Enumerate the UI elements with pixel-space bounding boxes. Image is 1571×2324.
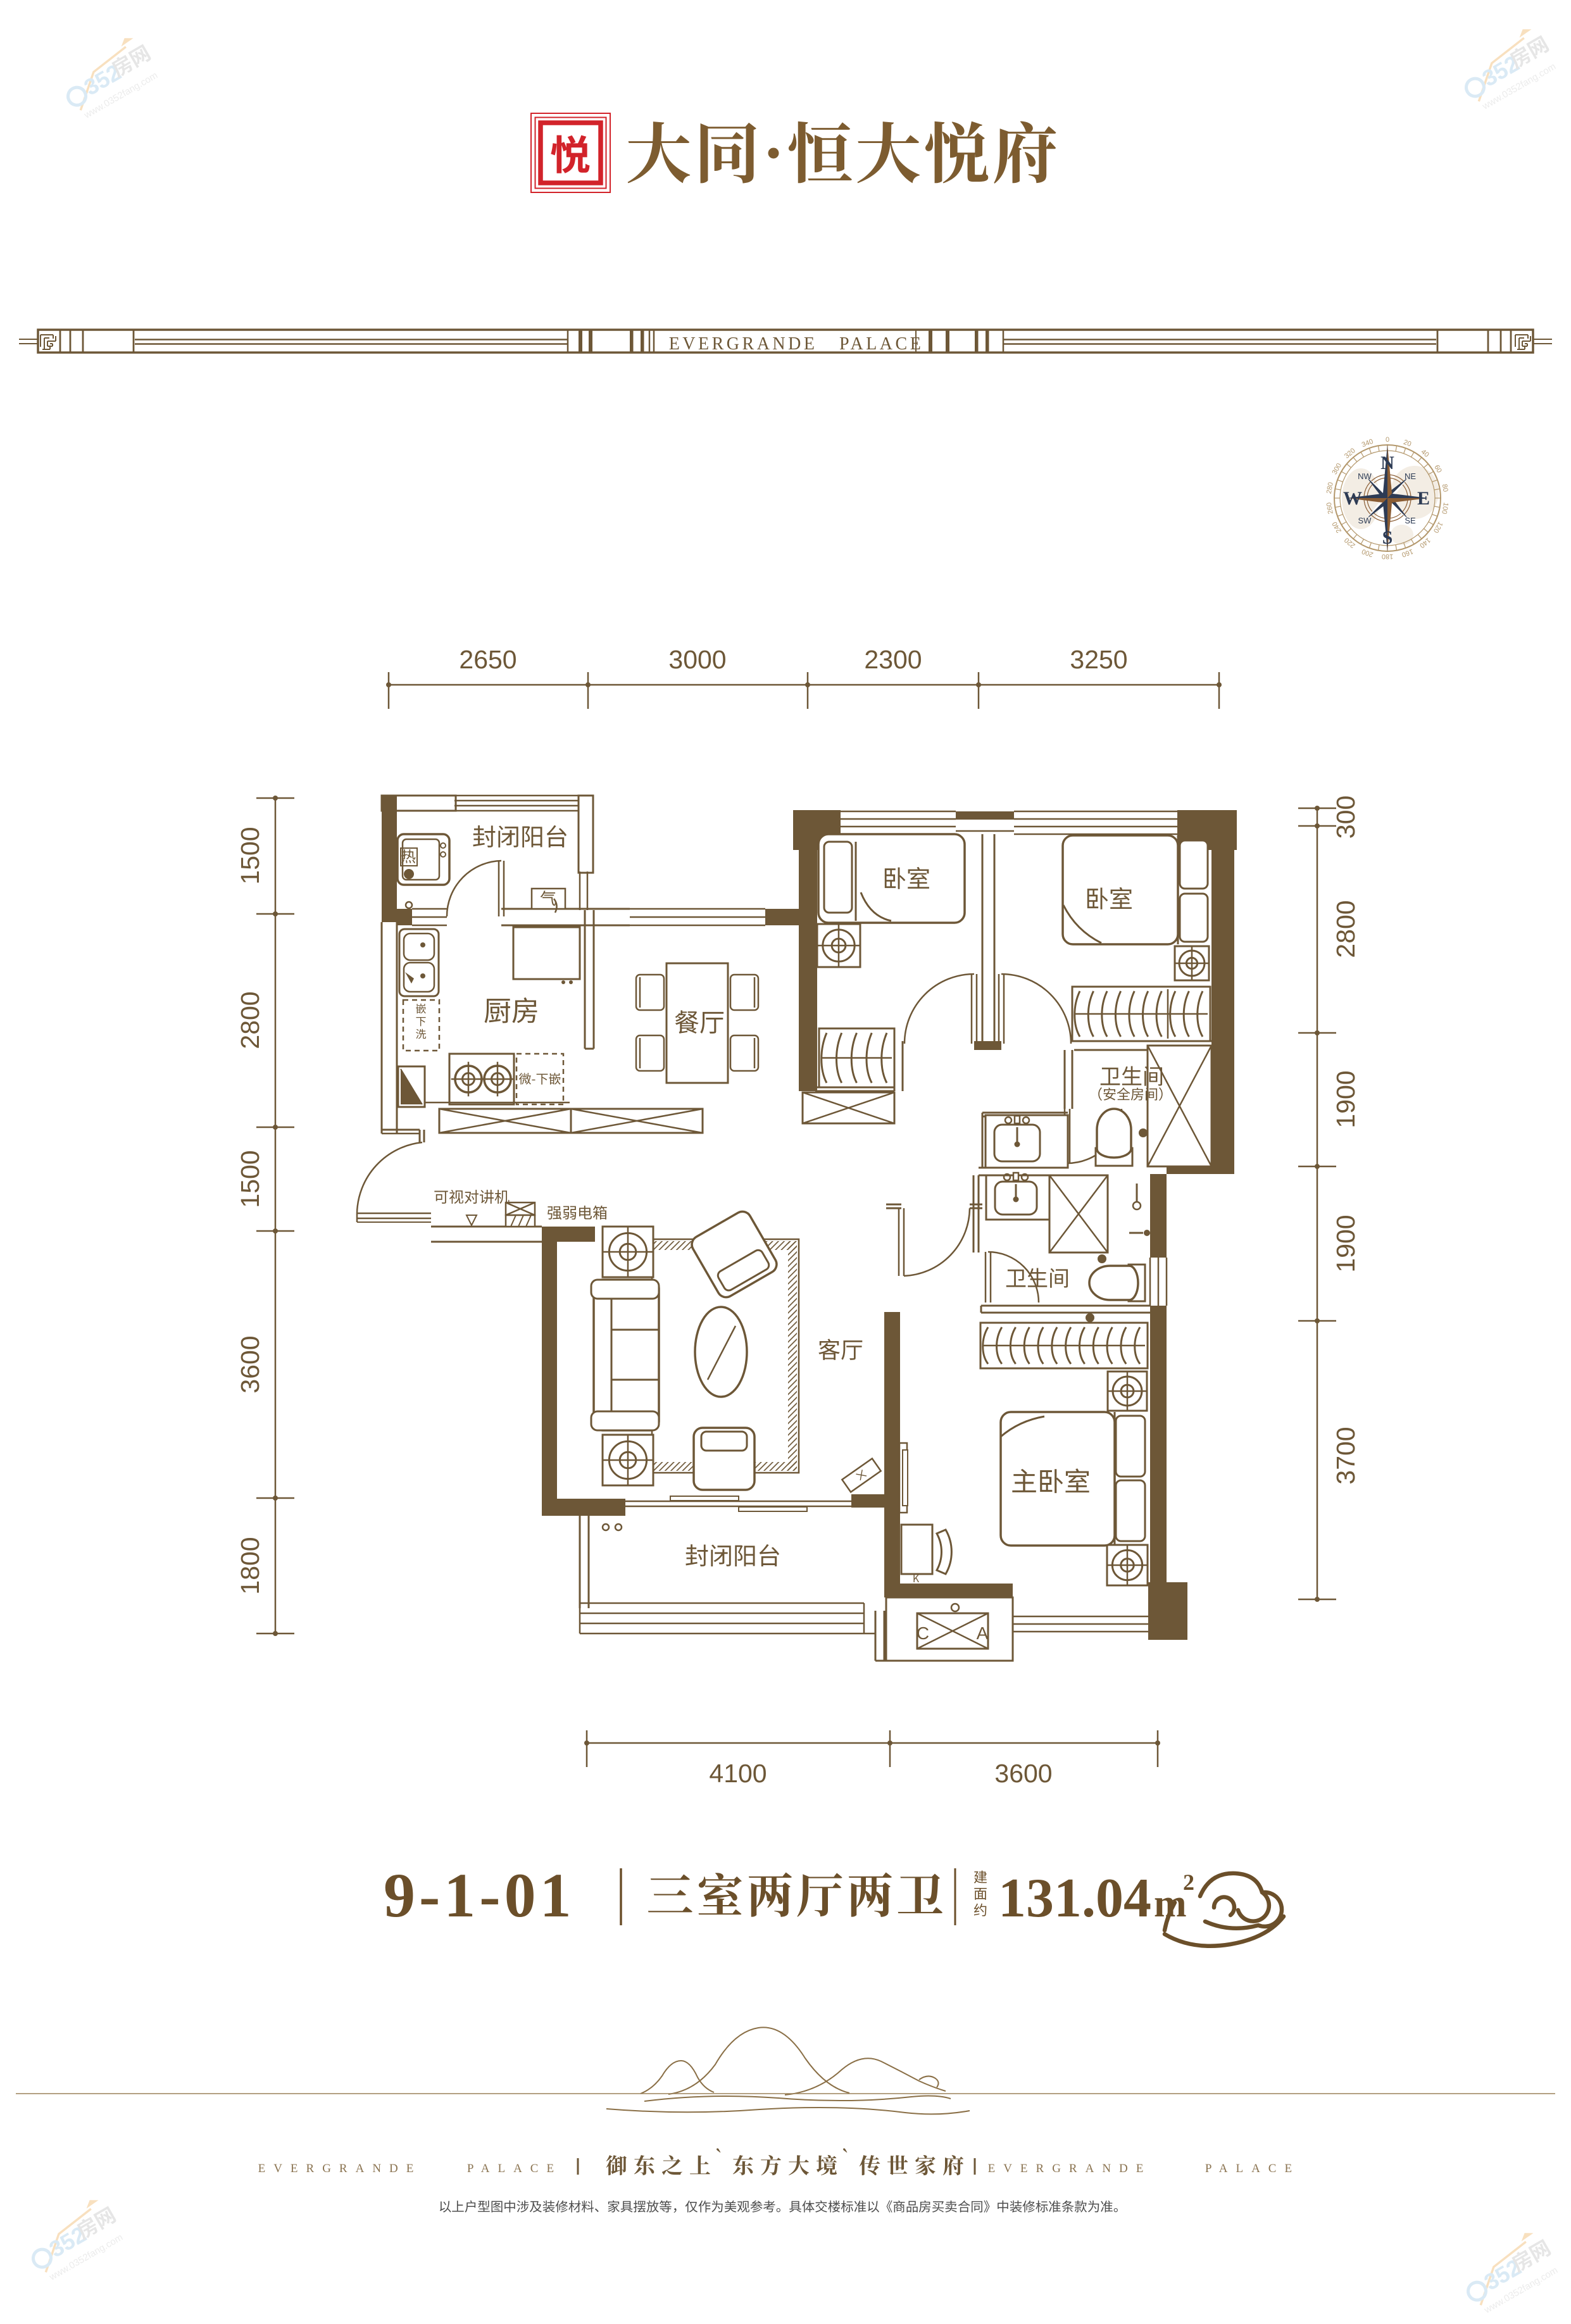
svg-text:2800: 2800 [235, 991, 265, 1049]
svg-text:2800: 2800 [1331, 900, 1360, 958]
svg-text:3000: 3000 [668, 645, 726, 674]
svg-text:PALACE: PALACE [1205, 2162, 1300, 2175]
svg-text:PALACE: PALACE [467, 2162, 562, 2175]
svg-text:A: A [977, 1623, 989, 1643]
svg-text:1800: 1800 [235, 1537, 265, 1594]
svg-text:0: 0 [1386, 436, 1389, 444]
svg-text:80: 80 [1441, 484, 1449, 492]
svg-text:3700: 3700 [1331, 1427, 1360, 1484]
svg-text:2: 2 [1183, 1870, 1194, 1895]
svg-text:W: W [1343, 488, 1362, 509]
svg-text:EVERGRANDE PALACE: EVERGRANDE PALACE [669, 334, 924, 354]
svg-text:NW: NW [1358, 472, 1372, 481]
svg-text:m: m [1154, 1882, 1187, 1925]
svg-text:SW: SW [1358, 516, 1372, 525]
svg-text:EVERGRANDE: EVERGRANDE [258, 2162, 422, 2175]
svg-text:180: 180 [1382, 553, 1393, 560]
svg-text:N: N [1380, 453, 1394, 473]
svg-text:1500: 1500 [235, 827, 265, 884]
svg-text:C: C [917, 1623, 929, 1643]
svg-text:1500: 1500 [235, 1150, 265, 1208]
svg-text:3600: 3600 [235, 1335, 265, 1393]
svg-text:2650: 2650 [459, 645, 516, 674]
svg-text:9-1-01: 9-1-01 [384, 1860, 575, 1930]
svg-text:NE: NE [1405, 472, 1416, 481]
svg-text:2300: 2300 [864, 645, 922, 674]
svg-text:300: 300 [1331, 796, 1360, 839]
svg-text:3250: 3250 [1070, 645, 1127, 674]
svg-text:1900: 1900 [1331, 1070, 1360, 1128]
svg-text:EVERGRANDE: EVERGRANDE [988, 2162, 1152, 2175]
svg-text:4100: 4100 [709, 1759, 767, 1788]
svg-text:131.04: 131.04 [998, 1868, 1151, 1929]
svg-text:E: E [1417, 488, 1430, 509]
svg-text:SE: SE [1405, 516, 1416, 525]
svg-text:1900: 1900 [1331, 1215, 1360, 1272]
svg-text:S: S [1382, 527, 1393, 548]
svg-text:3600: 3600 [994, 1759, 1052, 1788]
